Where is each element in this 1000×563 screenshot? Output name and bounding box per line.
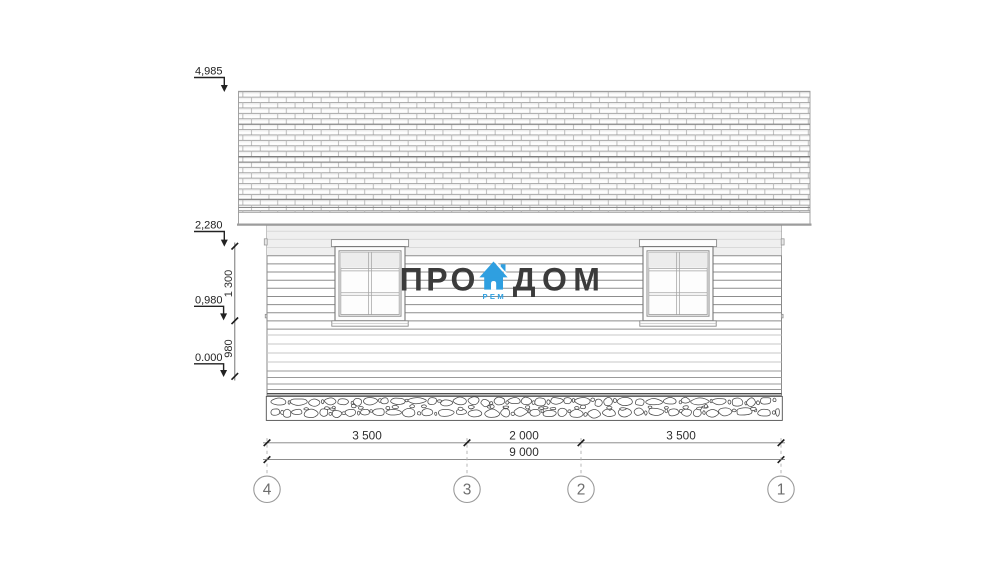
svg-text:4: 4: [263, 482, 272, 499]
svg-text:0,980: 0,980: [195, 294, 223, 306]
svg-text:980: 980: [223, 339, 235, 357]
svg-text:1 300: 1 300: [223, 270, 235, 298]
svg-text:2,280: 2,280: [195, 220, 223, 232]
svg-text:ДОМ: ДОМ: [513, 262, 607, 298]
svg-text:3 500: 3 500: [666, 428, 696, 442]
svg-text:3: 3: [463, 482, 472, 499]
svg-text:2: 2: [577, 482, 586, 499]
svg-text:4,985: 4,985: [195, 66, 223, 78]
svg-text:1: 1: [777, 482, 786, 499]
svg-text:РЕМ: РЕМ: [482, 292, 506, 301]
svg-text:ПРО: ПРО: [400, 262, 479, 298]
svg-text:2 000: 2 000: [509, 428, 539, 442]
svg-text:9 000: 9 000: [509, 445, 539, 459]
svg-text:3 500: 3 500: [352, 428, 382, 442]
svg-text:0.000: 0.000: [195, 352, 223, 364]
